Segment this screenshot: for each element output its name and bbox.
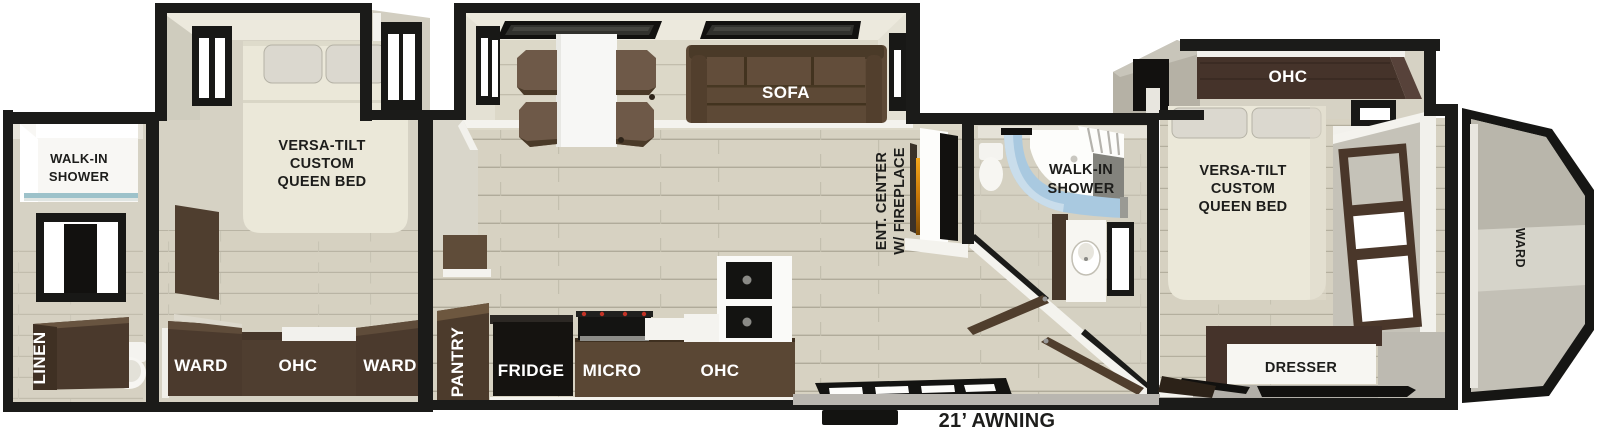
svg-text:21’ AWNING: 21’ AWNING bbox=[939, 410, 1056, 432]
svg-text:LINEN: LINEN bbox=[30, 332, 49, 385]
svg-text:CUSTOM: CUSTOM bbox=[290, 156, 354, 172]
svg-text:OHC: OHC bbox=[701, 361, 740, 380]
svg-text:FRIDGE: FRIDGE bbox=[498, 361, 565, 380]
svg-text:WARD: WARD bbox=[363, 356, 417, 375]
svg-text:SHOWER: SHOWER bbox=[1047, 181, 1114, 197]
svg-text:WALK-IN: WALK-IN bbox=[1049, 162, 1113, 178]
svg-text:VERSA-TILT: VERSA-TILT bbox=[278, 138, 365, 154]
svg-text:SHOWER: SHOWER bbox=[49, 169, 110, 184]
svg-text:PANTRY: PANTRY bbox=[448, 327, 467, 398]
svg-text:OHC: OHC bbox=[279, 356, 318, 375]
svg-text:QUEEN BED: QUEEN BED bbox=[1199, 199, 1288, 215]
svg-text:CUSTOM: CUSTOM bbox=[1211, 181, 1275, 197]
svg-text:SOFA: SOFA bbox=[762, 83, 810, 102]
svg-text:WARD: WARD bbox=[1513, 228, 1527, 268]
svg-text:DRESSER: DRESSER bbox=[1265, 360, 1337, 376]
svg-text:W/ FIREPLACE: W/ FIREPLACE bbox=[892, 147, 908, 255]
svg-text:VERSA-TILT: VERSA-TILT bbox=[1199, 163, 1286, 179]
svg-text:MICRO: MICRO bbox=[583, 361, 642, 380]
svg-text:ENT. CENTER: ENT. CENTER bbox=[874, 152, 890, 251]
svg-text:OHC: OHC bbox=[1269, 67, 1308, 86]
svg-text:QUEEN BED: QUEEN BED bbox=[278, 174, 367, 190]
svg-text:WALK-IN: WALK-IN bbox=[50, 151, 108, 166]
svg-text:WARD: WARD bbox=[174, 356, 228, 375]
